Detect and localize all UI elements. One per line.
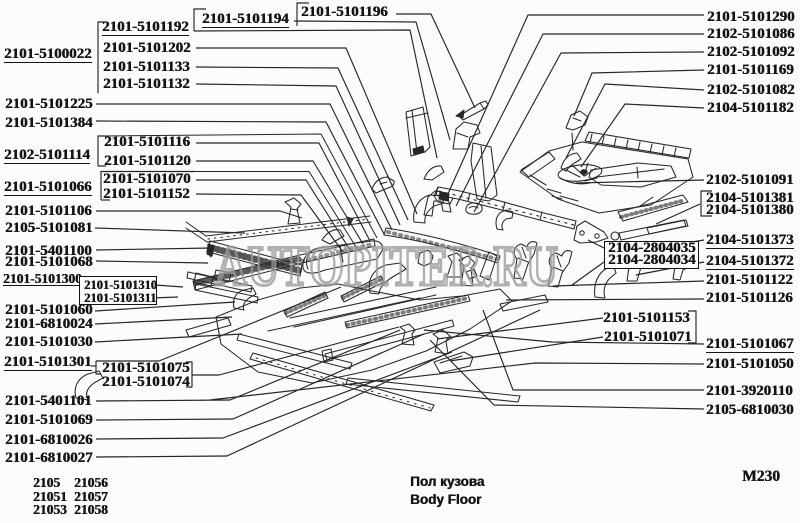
svg-text:AUTOPITER.RU: AUTOPITER.RU: [215, 235, 558, 299]
